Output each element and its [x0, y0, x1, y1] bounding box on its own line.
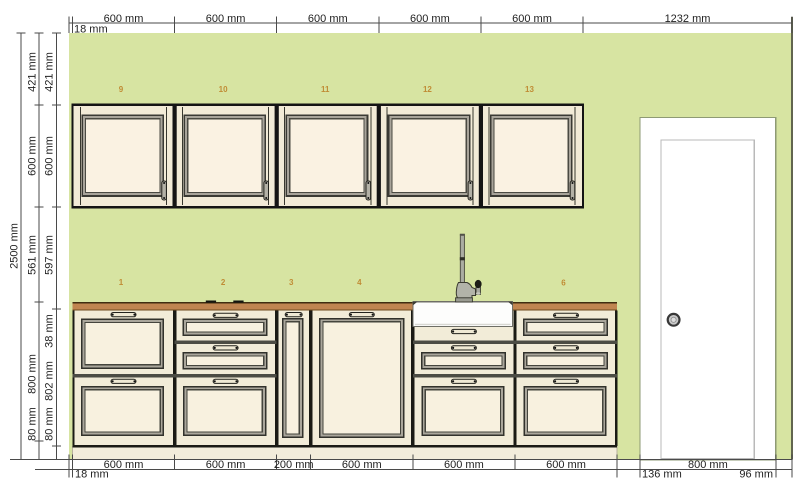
svg-text:11: 11 [321, 85, 330, 94]
svg-text:10: 10 [219, 85, 228, 94]
svg-text:2500 mm: 2500 mm [9, 223, 21, 269]
svg-text:421 mm: 421 mm [27, 52, 39, 92]
svg-text:600 mm: 600 mm [342, 459, 382, 471]
svg-text:4: 4 [357, 278, 362, 287]
svg-text:600 mm: 600 mm [27, 136, 39, 176]
svg-text:18 mm: 18 mm [75, 469, 109, 481]
svg-text:1: 1 [119, 278, 124, 287]
svg-text:13: 13 [525, 85, 534, 94]
svg-text:136 mm: 136 mm [642, 469, 682, 481]
svg-text:600 mm: 600 mm [444, 459, 484, 471]
svg-text:597 mm: 597 mm [44, 235, 56, 275]
svg-text:600 mm: 600 mm [104, 13, 144, 25]
svg-text:6: 6 [561, 279, 566, 288]
svg-text:600 mm: 600 mm [410, 13, 450, 25]
svg-text:600 mm: 600 mm [206, 13, 246, 25]
svg-text:3: 3 [289, 278, 294, 287]
svg-text:80 mm: 80 mm [27, 407, 39, 441]
svg-text:600 mm: 600 mm [104, 459, 144, 471]
svg-text:600 mm: 600 mm [206, 459, 246, 471]
svg-text:18 mm: 18 mm [74, 24, 108, 36]
svg-text:802 mm: 802 mm [44, 361, 56, 401]
svg-text:1232 mm: 1232 mm [665, 13, 711, 25]
svg-text:600 mm: 600 mm [512, 13, 552, 25]
svg-text:200 mm: 200 mm [274, 459, 314, 471]
svg-text:80 mm: 80 mm [44, 407, 56, 441]
svg-text:421 mm: 421 mm [44, 52, 56, 92]
svg-text:9: 9 [119, 85, 124, 94]
svg-text:600 mm: 600 mm [546, 459, 586, 471]
svg-text:800 mm: 800 mm [27, 354, 39, 394]
svg-text:800 mm: 800 mm [688, 459, 728, 471]
svg-text:12: 12 [423, 85, 432, 94]
svg-text:38 mm: 38 mm [44, 314, 56, 348]
svg-text:96 mm: 96 mm [739, 469, 773, 481]
svg-text:561 mm: 561 mm [27, 235, 39, 275]
svg-text:600 mm: 600 mm [44, 136, 56, 176]
svg-text:2: 2 [221, 278, 226, 287]
svg-text:600 mm: 600 mm [308, 13, 348, 25]
